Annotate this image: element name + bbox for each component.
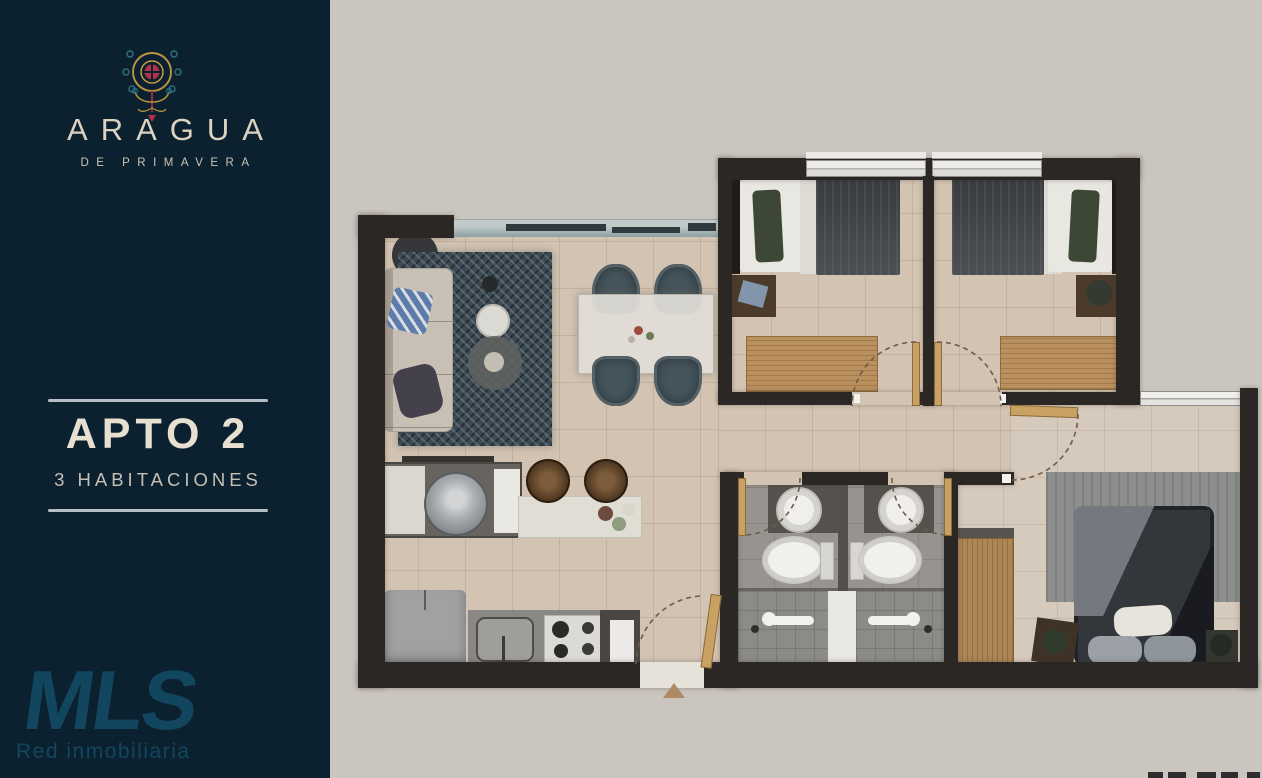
cutoff-mark (1221, 772, 1238, 778)
entrance-arrow-icon (663, 683, 685, 698)
master-swing-arc (1012, 414, 1078, 480)
cutoff-mark (1168, 772, 1186, 778)
cutoff-mark (1148, 772, 1163, 778)
page: ARAGUA DE PRIMAVERA APTO 2 3 HABITACIONE… (0, 0, 1262, 778)
entry-swing-arc (636, 596, 700, 664)
bed2-swing-arc (937, 342, 1001, 406)
door-swing-arcs (0, 0, 1262, 778)
bath2-swing-arc (892, 478, 949, 535)
bath1-swing-arc (743, 478, 800, 535)
floor-plan (0, 0, 1262, 778)
cutoff-mark (1247, 772, 1260, 778)
cutoff-mark (1197, 772, 1216, 778)
bed1-swing-arc (852, 342, 916, 406)
